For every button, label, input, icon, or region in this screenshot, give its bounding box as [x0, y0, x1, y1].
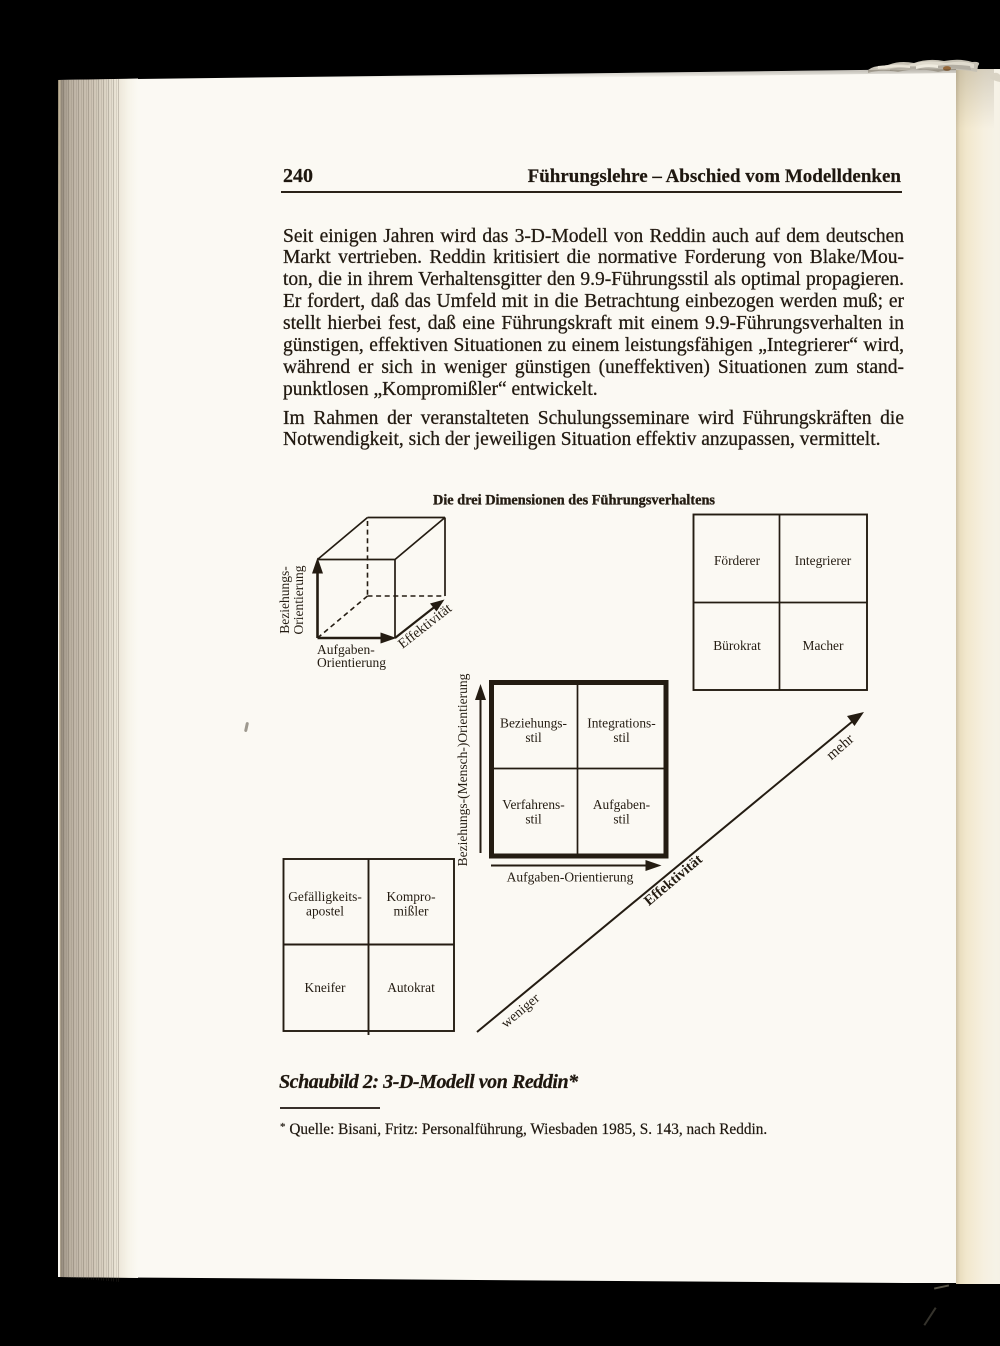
svg-text:stil: stil — [613, 730, 630, 745]
svg-text:Integrierer: Integrierer — [795, 553, 852, 568]
svg-text:Effektivität: Effektivität — [396, 601, 455, 652]
svg-text:Effektivität: Effektivität — [641, 851, 706, 909]
svg-text:Die drei Dimensionen des Führu: Die drei Dimensionen des Führungsverhalt… — [433, 493, 715, 509]
svg-text:stil: stil — [525, 730, 542, 745]
svg-text:Förderer: Förderer — [714, 553, 761, 568]
svg-text:Autokrat: Autokrat — [387, 980, 435, 995]
svg-text:stil: stil — [525, 812, 542, 827]
svg-text:Beziehungs-(Mensch-)Orientieru: Beziehungs-(Mensch-)Orientierung — [455, 673, 470, 866]
svg-text:Gefälligkeits-: Gefälligkeits- — [288, 889, 362, 904]
svg-text:Orientierung: Orientierung — [291, 565, 306, 634]
svg-text:Integrations-: Integrations- — [587, 716, 655, 731]
svg-text:Beziehungs-: Beziehungs- — [500, 716, 567, 731]
svg-text:Aufgaben-: Aufgaben- — [593, 797, 650, 812]
svg-text:Bürokrat: Bürokrat — [713, 638, 761, 653]
svg-text:stil: stil — [613, 812, 630, 827]
svg-text:Kompro-: Kompro- — [386, 889, 435, 904]
svg-text:Macher: Macher — [803, 638, 844, 653]
svg-text:mißler: mißler — [394, 904, 429, 919]
svg-text:Beziehungs-: Beziehungs- — [277, 566, 292, 634]
svg-text:Aufgaben-Orientierung: Aufgaben-Orientierung — [507, 870, 634, 885]
svg-text:mehr: mehr — [823, 731, 857, 763]
svg-text:Orientierung: Orientierung — [317, 655, 386, 670]
svg-text:apostel: apostel — [306, 904, 344, 919]
svg-text:Kneifer: Kneifer — [305, 980, 346, 995]
svg-text:Verfahrens-: Verfahrens- — [502, 797, 564, 812]
